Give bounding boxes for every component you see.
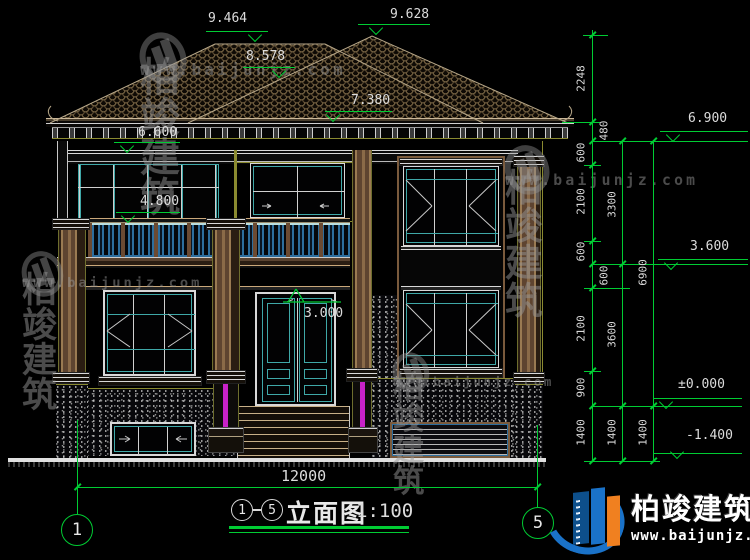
elevation-drawing-canvas: 柏竣建筑 www.baijunjz.com 柏竣建筑 www.baijunjz.… [0,0,750,560]
magenta-accent-right [360,382,365,427]
drawing-scale: 1:100 [356,500,413,522]
right-stone-pier [515,384,543,458]
elevation-label: 7.380 [351,93,390,108]
logo-brand: 柏竣建筑 [631,486,750,528]
elevation-label: 4.800 [140,194,179,209]
porch-column-right-base [348,427,378,453]
title-dash [253,509,261,511]
dim-label: 1400 [606,411,619,455]
dim-label: 6900 [637,251,650,295]
dim-label: 600 [575,230,588,274]
elevation-label: 6.900 [688,111,727,126]
title-underline [229,526,409,529]
elevation-label: 8.578 [246,49,285,64]
porch-column-right-trim [346,368,378,382]
dim-label: 1400 [637,411,650,455]
elevation-label: 3.000 [304,306,343,321]
dim-label: 480 [598,109,611,153]
dim-label: 2100 [575,307,588,351]
porch-column-left-shaft [212,230,240,370]
dim-label: 3300 [606,183,619,227]
dim-label: 1400 [575,411,588,455]
elevation-label: -1.400 [686,428,733,443]
porch-column-right-pedestal [352,382,372,427]
elevation-label: ±0.000 [678,377,725,392]
dim-label: 600 [575,131,588,175]
dim-label: 2100 [575,180,588,224]
dim-label: 2248 [575,57,588,101]
total-width-dim: 12000 [281,467,326,485]
left-column-shaft [58,230,86,372]
porch-column-left-pedestal [213,384,239,427]
elevation-label: 3.600 [690,239,729,254]
drawing-title: 立面图 [286,494,367,530]
title-grid-from: 1 [231,499,253,521]
logo-building-bar-orange [607,495,620,546]
porch-column-right-shaft [352,150,372,368]
title-grid-to: 5 [261,499,283,521]
elevation-label: 9.628 [390,7,429,22]
company-logo: 柏竣建筑 www.baijunjz.com [543,480,750,558]
watermark-url: www.baijunjz.com [140,62,346,78]
dim-label: 900 [575,366,588,410]
left-column-capital [52,218,90,230]
porch-column-left-capital [206,218,246,230]
porch-column-left-trim [206,370,246,384]
left-stone-pier [56,384,88,458]
title-underline-2 [229,532,409,533]
logo-building-bar-blue [591,487,605,544]
ground-line [8,458,546,462]
elevation-label: 6.600 [138,125,177,140]
elevation-label: 9.464 [208,11,247,26]
logo-url: www.baijunjz.com [631,528,750,544]
dim-label: 600 [598,254,611,298]
magenta-accent-left [223,384,228,427]
grid-bubble-1: 1 [61,514,93,546]
logo-building-bar-dark [573,491,589,545]
porch-column-left-base [208,427,244,453]
dim-label: 3600 [606,313,619,357]
